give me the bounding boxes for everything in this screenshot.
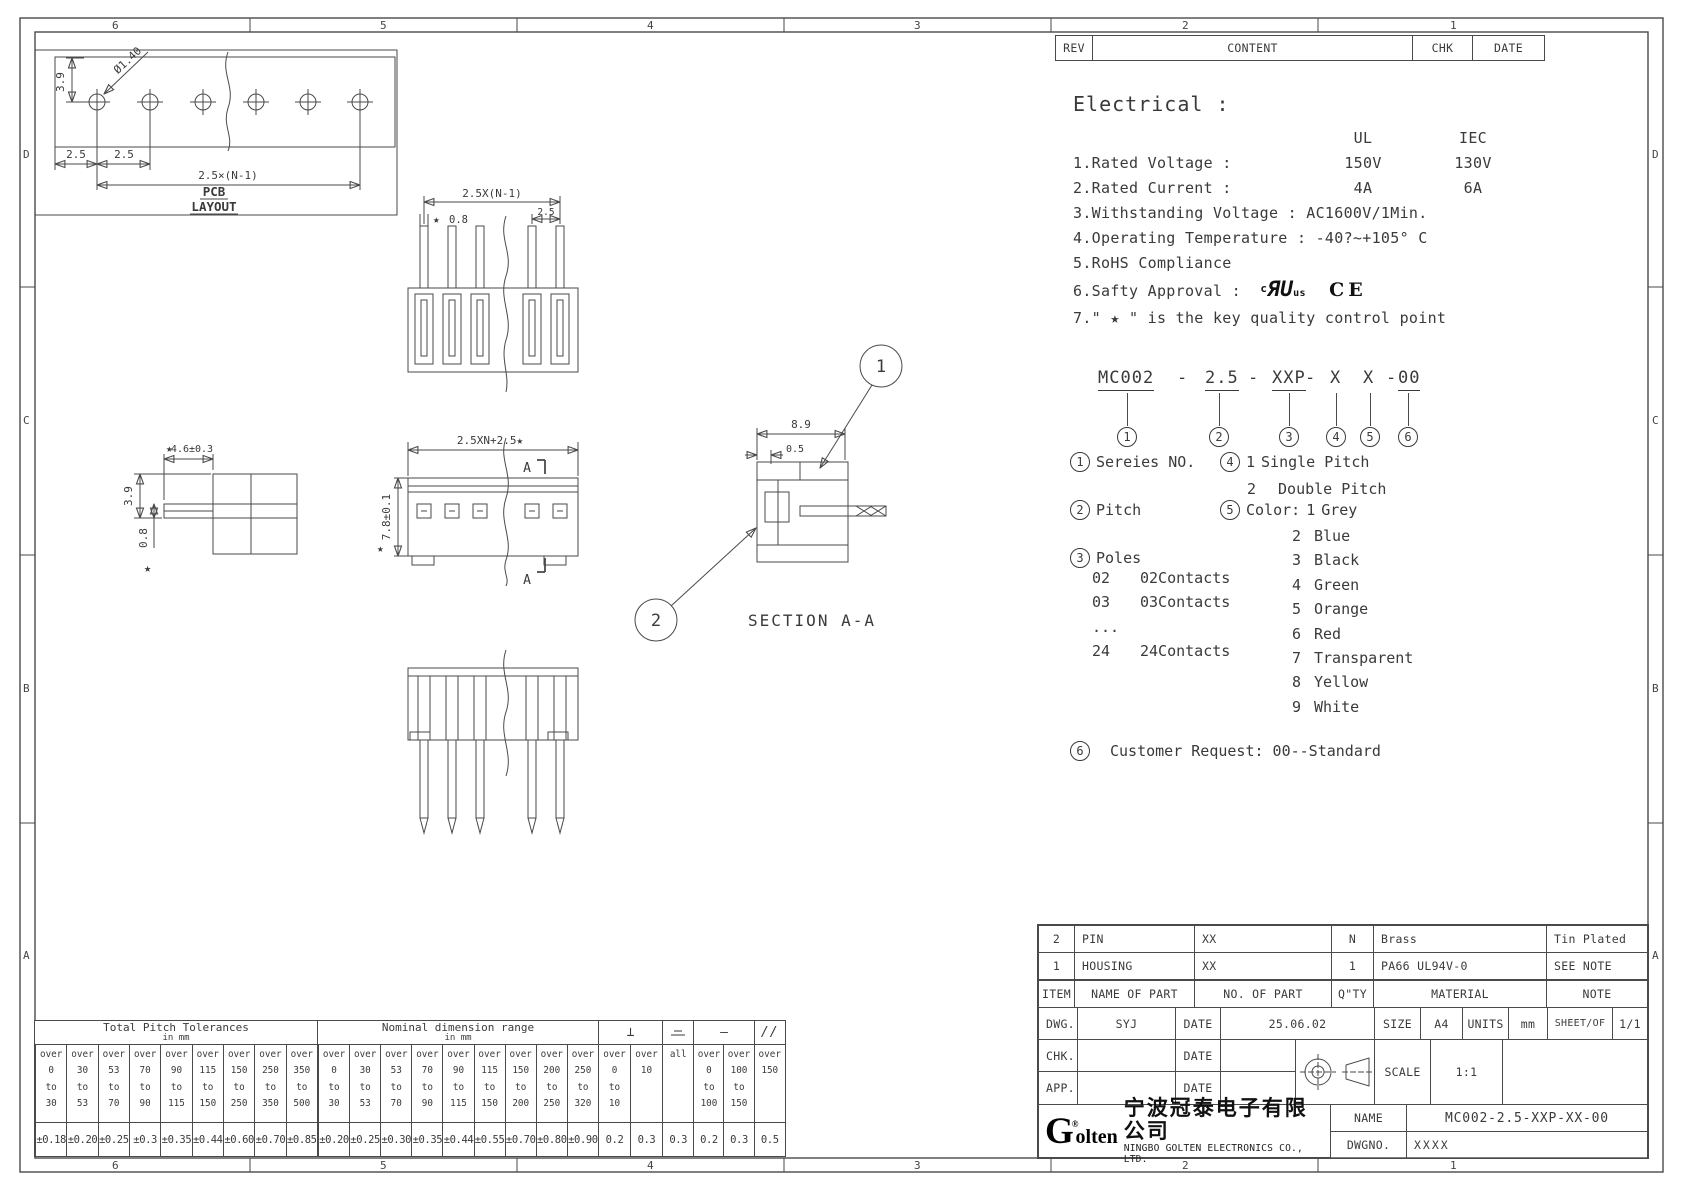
pn-poles: XXP	[1272, 368, 1306, 391]
pn-customer: 00	[1398, 368, 1420, 391]
pn-circle-2: 2	[1209, 427, 1229, 447]
rev-header-content: CONTENT	[1092, 35, 1413, 61]
pcb-dim-3-9: 3.9	[54, 72, 67, 92]
zone-row-right-d: D	[1652, 148, 1659, 161]
section-caption: SECTION A-A	[748, 611, 876, 630]
legend-series: 1Sereies NO.	[1070, 452, 1195, 472]
dwgno-label: DWGNO.	[1330, 1131, 1407, 1159]
connector-side-view: ★ 4.6±0.3 3.9 0.8 ★	[122, 442, 297, 575]
company-logo: G®olten	[1045, 1110, 1118, 1153]
side-dim-w: 4.6±0.3	[171, 444, 213, 455]
zone-row-left-b: B	[23, 682, 30, 695]
geometric-tolerance-table: ⊥ over 0 to 10 0.2 over 10 0.3 all 0.3	[598, 1020, 786, 1157]
col-ul: UL	[1308, 126, 1418, 151]
poles-row: ...	[1092, 615, 1230, 639]
tolerance-column: over 0 to 30 ±0.18	[35, 1045, 66, 1156]
engineering-drawing-sheet: 3.9 Ø1.40 2.5 2.5 2.5×(N-1) PCB LAYOUT 2…	[0, 0, 1683, 1190]
geo-col: over 0 to 10 0.2	[599, 1045, 630, 1156]
units-label: UNITS	[1462, 1007, 1509, 1040]
nominal-tolerance-table: Nominal dimension range in mm over 0 to …	[317, 1020, 599, 1157]
zone-col-top-4: 4	[647, 19, 654, 32]
rated-current-iec: 6A	[1418, 176, 1528, 201]
top-dim-last: 2.5	[537, 207, 554, 218]
part-row-item: 2	[1038, 925, 1075, 953]
connector-top-view: 2.5X(N-1) 2.5 ★ 0.8	[408, 187, 578, 392]
dwgno-value: XXXX	[1406, 1131, 1648, 1159]
rev-header-rev: REV	[1055, 35, 1093, 61]
pn-dash-4: -	[1386, 368, 1397, 388]
tolerance-column: over 115 to 150 ±0.55	[474, 1045, 505, 1156]
legend-pitch: 2Pitch	[1070, 500, 1141, 520]
tolerance-column: over 53 to 70 ±0.30	[380, 1045, 411, 1156]
pcb-dim-2-5-b: 2.5	[114, 148, 134, 161]
pcb-dim-total: 2.5×(N-1)	[198, 169, 258, 182]
pcb-dim-2-5-a: 2.5	[66, 148, 86, 161]
chk-value	[1077, 1039, 1176, 1072]
part-row-material: Brass	[1373, 925, 1547, 953]
pn-circle-3: 3	[1279, 427, 1299, 447]
rated-voltage-iec: 130V	[1418, 151, 1528, 176]
part-row-note: SEE NOTE	[1546, 952, 1648, 980]
legend-poles: 3Poles	[1070, 548, 1141, 568]
zone-col-bot-1: 1	[1450, 1159, 1457, 1172]
company-name-cn: 宁波冠泰电子有限公司	[1124, 1097, 1330, 1143]
zone-col-top-1: 1	[1450, 19, 1457, 32]
tolerance-column: over 70 to 90 ±0.3	[129, 1045, 160, 1156]
rated-current-ul: 4A	[1308, 176, 1418, 201]
parts-header-material: MATERIAL	[1373, 979, 1547, 1008]
dwg-label: DWG.	[1038, 1007, 1078, 1040]
tolerance-column: over 90 to 115 ±0.44	[442, 1045, 473, 1156]
geo-col: over 100 to 150 0.3	[723, 1045, 753, 1156]
pitch-tol-title: Total Pitch Tolerances	[35, 1022, 317, 1034]
app-label: APP.	[1038, 1071, 1078, 1105]
legend-color-rows: 2Blue 3Black 4Green 5Orange 6Red 7Transp…	[1292, 524, 1413, 719]
operating-temperature: 4.Operating Temperature : -40?~+105° C	[1073, 226, 1513, 251]
sheet-value: 1/1	[1612, 1007, 1648, 1040]
dwg-value: SYJ	[1077, 1007, 1176, 1040]
tolerance-column: over 90 to 115 ±0.35	[160, 1045, 191, 1156]
pcb-caption-1: PCB	[203, 184, 226, 199]
pn-dash-1: -	[1177, 368, 1188, 388]
chk-label: CHK.	[1038, 1039, 1078, 1072]
tolerance-column: over 30 to 53 ±0.25	[349, 1045, 380, 1156]
connector-front-view: 2.5XN+2.5★ A A 7.8±0.1 ★	[377, 434, 578, 588]
rated-voltage-ul: 150V	[1308, 151, 1418, 176]
pitch-tol-unit: in mm	[35, 1034, 317, 1043]
part-row-no: XX	[1194, 952, 1332, 980]
legend-color-label: Color:	[1246, 501, 1300, 519]
rated-current-label: 2.Rated Current :	[1073, 176, 1308, 201]
section-dim-w: 8.9	[791, 418, 811, 431]
side-dim-h: 3.9	[122, 486, 135, 506]
zone-row-right-a: A	[1652, 949, 1659, 962]
scale-label: SCALE	[1374, 1039, 1431, 1105]
top-dim-total: 2.5X(N-1)	[462, 187, 522, 200]
parts-header-item: ITEM	[1038, 979, 1075, 1008]
units-value: mm	[1508, 1007, 1548, 1040]
legend-pitch-type-rows: 2 Double Pitch	[1247, 477, 1386, 501]
tolerance-column: over 0 to 30 ±0.20	[318, 1045, 349, 1156]
name-label: NAME	[1330, 1104, 1407, 1132]
projection-symbol-cell	[1295, 1039, 1375, 1105]
parts-header-qty: Q"TY	[1331, 979, 1374, 1008]
zone-row-right-b: B	[1652, 682, 1659, 695]
ul-recognized-mark-icon: cЯUus	[1260, 282, 1305, 300]
section-dim-t: 0.5	[786, 444, 804, 455]
tolerance-column: over 250 to 320 ±0.90	[567, 1045, 598, 1156]
connector-bottom-view	[408, 650, 578, 833]
pn-dash-2: -	[1248, 368, 1259, 388]
col-iec: IEC	[1418, 126, 1528, 151]
zone-col-top-6: 6	[112, 19, 119, 32]
tolerance-column: over 53 to 70 ±0.25	[98, 1045, 129, 1156]
color-row: 4Green	[1292, 573, 1413, 597]
rev-header-date: DATE	[1472, 35, 1545, 61]
color-row: 5Orange	[1292, 597, 1413, 621]
legend-customer-label: Customer Request: 00--Standard	[1110, 742, 1381, 760]
pn-circle-4: 4	[1326, 427, 1346, 447]
parts-header-no: NO. OF PART	[1194, 979, 1332, 1008]
ce-mark-icon: CE	[1329, 279, 1367, 301]
pn-circle-5: 5	[1360, 427, 1380, 447]
geo-col: over 10 0.3	[630, 1045, 662, 1156]
pcb-layout-view: 3.9 Ø1.40 2.5 2.5 2.5×(N-1) PCB LAYOUT	[35, 44, 397, 215]
zone-row-left-d: D	[23, 148, 30, 161]
pn-color: X	[1363, 368, 1374, 388]
sheet-label: SHEET/OF	[1547, 1007, 1613, 1040]
part-row-name: PIN	[1074, 925, 1195, 953]
pn-circle-1: 1	[1117, 427, 1137, 447]
geo-col: over 0 to 100 0.2	[694, 1045, 723, 1156]
geo-col: all 0.3	[663, 1045, 694, 1156]
color-row: 7Transparent	[1292, 646, 1413, 670]
zone-row-left-a: A	[23, 949, 30, 962]
dwg-date-value: 25.06.02	[1220, 1007, 1375, 1040]
rev-header-chk: CHK	[1412, 35, 1473, 61]
safety-approval-label: 6.Safty Approval :	[1073, 282, 1241, 300]
size-value: A4	[1420, 1007, 1463, 1040]
legend-pitch-label: Pitch	[1096, 501, 1141, 519]
callout-2: 2	[651, 611, 661, 631]
section-view: 8.9 0.5 1 2 SECTION A-A	[635, 345, 902, 641]
zone-col-top-5: 5	[380, 19, 387, 32]
zone-col-bot-5: 5	[380, 1159, 387, 1172]
nominal-tol-title: Nominal dimension range	[318, 1022, 598, 1034]
color-row: 8Yellow	[1292, 670, 1413, 694]
parallelism-symbol-icon: //	[755, 1021, 786, 1045]
legend-pitch-type: 4 1Single Pitch	[1220, 452, 1369, 472]
poles-row: 2424Contacts	[1092, 639, 1230, 663]
front-dim-h: 7.8±0.1	[380, 494, 393, 540]
tolerance-column: over 30 to 53 ±0.20	[66, 1045, 97, 1156]
legend-series-label: Sereies NO.	[1096, 453, 1195, 471]
parts-header-name: NAME OF PART	[1074, 979, 1195, 1008]
third-angle-projection-icon	[1296, 1042, 1374, 1102]
zone-row-right-c: C	[1652, 414, 1659, 427]
pn-series: MC002	[1098, 368, 1154, 391]
rated-voltage-label: 1.Rated Voltage :	[1073, 151, 1308, 176]
zone-col-top-3: 3	[914, 19, 921, 32]
color-row: 9White	[1292, 695, 1413, 719]
tolerance-column: over 115 to 150 ±0.44	[192, 1045, 223, 1156]
pcb-caption-2: LAYOUT	[191, 199, 236, 214]
scale-value: 1:1	[1430, 1039, 1503, 1105]
part-row-material: PA66 UL94V-0	[1373, 952, 1547, 980]
perpendicularity-symbol-icon: ⊥	[599, 1021, 662, 1045]
section-mark-a-top: A	[523, 461, 531, 476]
straightness-symbol-icon: —	[694, 1021, 753, 1045]
zone-col-bot-3: 3	[914, 1159, 921, 1172]
tolerance-column: over 150 to 200 ±0.70	[505, 1045, 536, 1156]
side-dim-t: 0.8	[137, 528, 150, 548]
side-star-2: ★	[144, 561, 151, 575]
pn-circle-6: 6	[1398, 427, 1418, 447]
section-mark-a-bottom: A	[523, 573, 531, 588]
tolerance-column: over 200 to 250 ±0.80	[536, 1045, 567, 1156]
legend-color: 5 Color: 1Grey	[1220, 500, 1357, 520]
rohs-compliance: 5.RoHS Compliance	[1073, 251, 1513, 276]
part-row-name: HOUSING	[1074, 952, 1195, 980]
color-row: 3Black	[1292, 548, 1413, 572]
nominal-tol-unit: in mm	[318, 1034, 598, 1043]
withstanding-voltage: 3.Withstanding Voltage : AC1600V/1Min.	[1073, 201, 1513, 226]
tolerance-column: over 250 to 350 ±0.70	[254, 1045, 285, 1156]
key-quality-note: 7." ★ " is the key quality control point	[1073, 306, 1513, 331]
poles-row: 0303Contacts	[1092, 590, 1230, 614]
dwg-date-label: DATE	[1175, 1007, 1221, 1040]
legend-poles-label: Poles	[1096, 549, 1141, 567]
company-name-en: NINGBO GOLTEN ELECTRONICS CO., LTD.	[1124, 1143, 1330, 1165]
scale-extra-cell	[1502, 1039, 1648, 1105]
color-row: 6Red	[1292, 622, 1413, 646]
top-star: ★	[433, 213, 440, 226]
chk-date-label: DATE	[1175, 1039, 1221, 1072]
part-row-no: XX	[1194, 925, 1332, 953]
size-label: SIZE	[1374, 1007, 1421, 1040]
pcb-holes	[84, 89, 373, 115]
electrical-heading: Electrical :	[1073, 92, 1513, 116]
tolerance-column: over 70 to 90 ±0.35	[411, 1045, 442, 1156]
part-row-note: Tin Plated	[1546, 925, 1648, 953]
zone-col-bot-6: 6	[112, 1159, 119, 1172]
front-dim-total: 2.5XN+2.5★	[457, 434, 524, 447]
pitch-tolerance-table: Total Pitch Tolerances in mm over 0 to 3…	[34, 1020, 318, 1157]
company-block: G®olten 宁波冠泰电子有限公司 NINGBO GOLTEN ELECTRO…	[1038, 1104, 1331, 1158]
front-star: ★	[377, 542, 384, 555]
legend-customer: 6 Customer Request: 00--Standard	[1070, 741, 1381, 761]
zone-col-bot-4: 4	[647, 1159, 654, 1172]
parts-header-note: NOTE	[1546, 979, 1648, 1008]
pn-dash-3: -	[1305, 368, 1316, 388]
pn-pitch: 2.5	[1205, 368, 1239, 391]
electrical-specs: Electrical : UL IEC 1.Rated Voltage : 15…	[1073, 92, 1513, 331]
tolerance-column: over 350 to 500 ±0.85	[286, 1045, 317, 1156]
part-row-item: 1	[1038, 952, 1075, 980]
geo-col: over 150 0.5	[755, 1045, 786, 1156]
zone-col-top-2: 2	[1182, 19, 1189, 32]
symmetry-symbol-icon	[663, 1021, 694, 1045]
poles-row: 0202Contacts	[1092, 566, 1230, 590]
top-dim-tab: 0.8	[449, 214, 468, 226]
pitch-type-row: 2 Double Pitch	[1247, 477, 1386, 501]
pn-pitch-type: X	[1330, 368, 1341, 388]
part-row-qty: 1	[1331, 952, 1374, 980]
legend-poles-rows: 0202Contacts 0303Contacts ... 2424Contac…	[1092, 566, 1230, 664]
chk-date-value	[1220, 1039, 1296, 1072]
color-row: 2Blue	[1292, 524, 1413, 548]
part-row-qty: N	[1331, 925, 1374, 953]
zone-row-left-c: C	[23, 414, 30, 427]
callout-1: 1	[876, 357, 886, 377]
part-name-value: MC002-2.5-XXP-XX-00	[1406, 1104, 1648, 1132]
tolerance-column: over 150 to 250 ±0.60	[223, 1045, 254, 1156]
